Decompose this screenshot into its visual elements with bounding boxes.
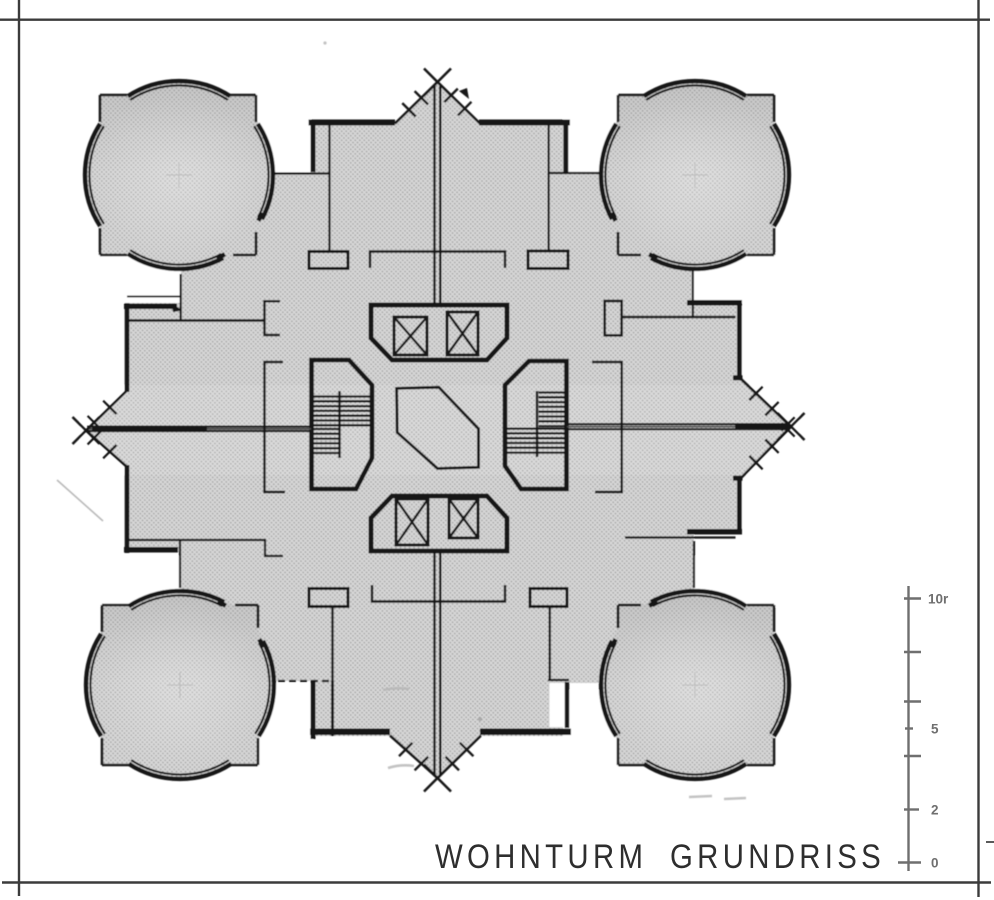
svg-text:2: 2	[931, 803, 939, 818]
svg-text:0: 0	[931, 856, 939, 871]
svg-text:10r: 10r	[928, 592, 949, 607]
svg-text:WOHNTURM GRUNDRISS: WOHNTURM GRUNDRISS	[435, 838, 885, 876]
svg-text:5: 5	[931, 722, 939, 737]
